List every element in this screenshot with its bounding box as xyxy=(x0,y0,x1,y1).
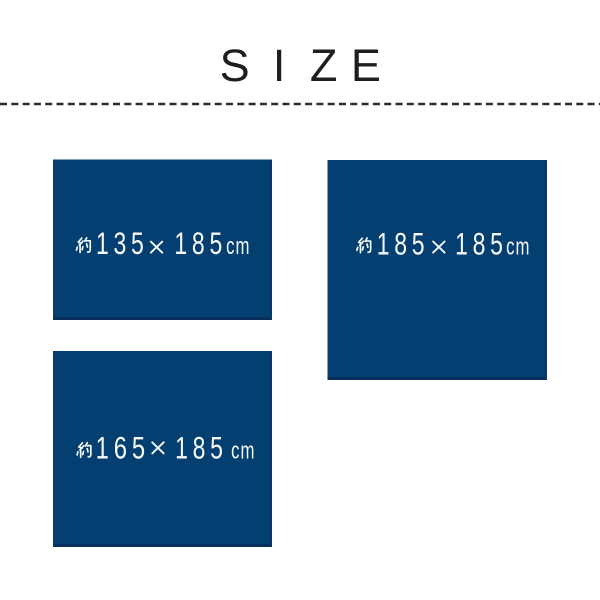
svg-text:cm: cm xyxy=(226,233,250,260)
svg-text:I: I xyxy=(273,40,286,91)
svg-text:cm: cm xyxy=(506,234,530,261)
svg-text:185: 185 xyxy=(455,226,508,261)
svg-text:185: 185 xyxy=(377,226,430,261)
svg-text:Z: Z xyxy=(310,40,338,91)
svg-text:S: S xyxy=(220,40,250,91)
svg-text:185: 185 xyxy=(174,225,227,260)
svg-text:cm: cm xyxy=(231,438,255,465)
svg-text:135: 135 xyxy=(96,225,149,260)
svg-text:165: 165 xyxy=(96,430,150,465)
svg-text:E: E xyxy=(351,40,381,91)
svg-text:185: 185 xyxy=(175,430,228,465)
